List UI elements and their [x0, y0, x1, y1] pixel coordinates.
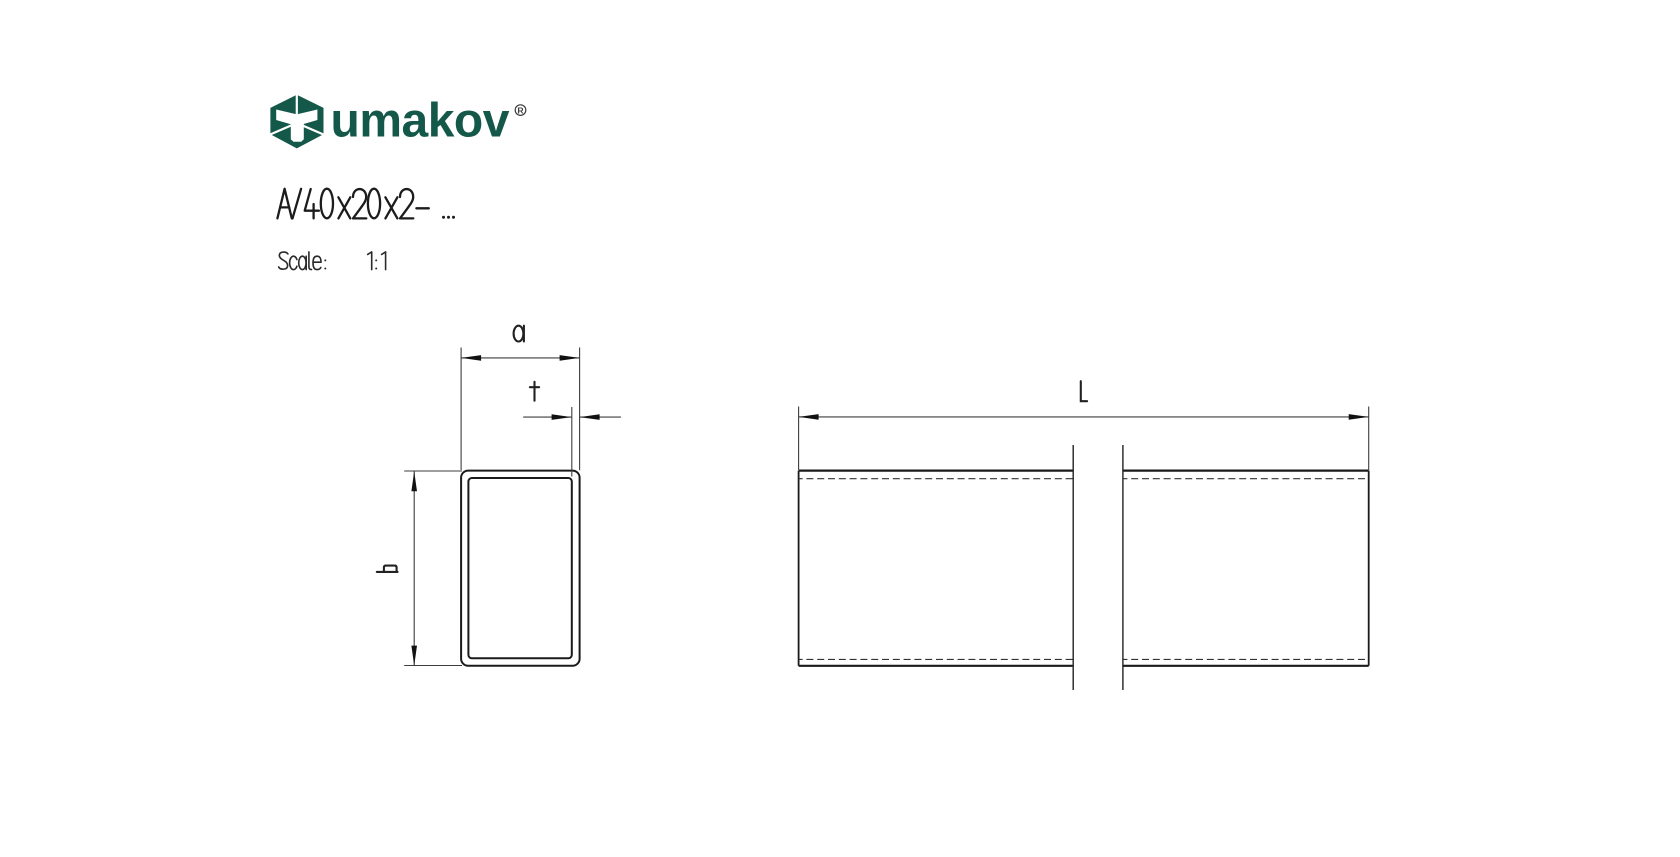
svg-text:R: R — [517, 105, 524, 115]
svg-text:umakov: umakov — [331, 95, 510, 148]
